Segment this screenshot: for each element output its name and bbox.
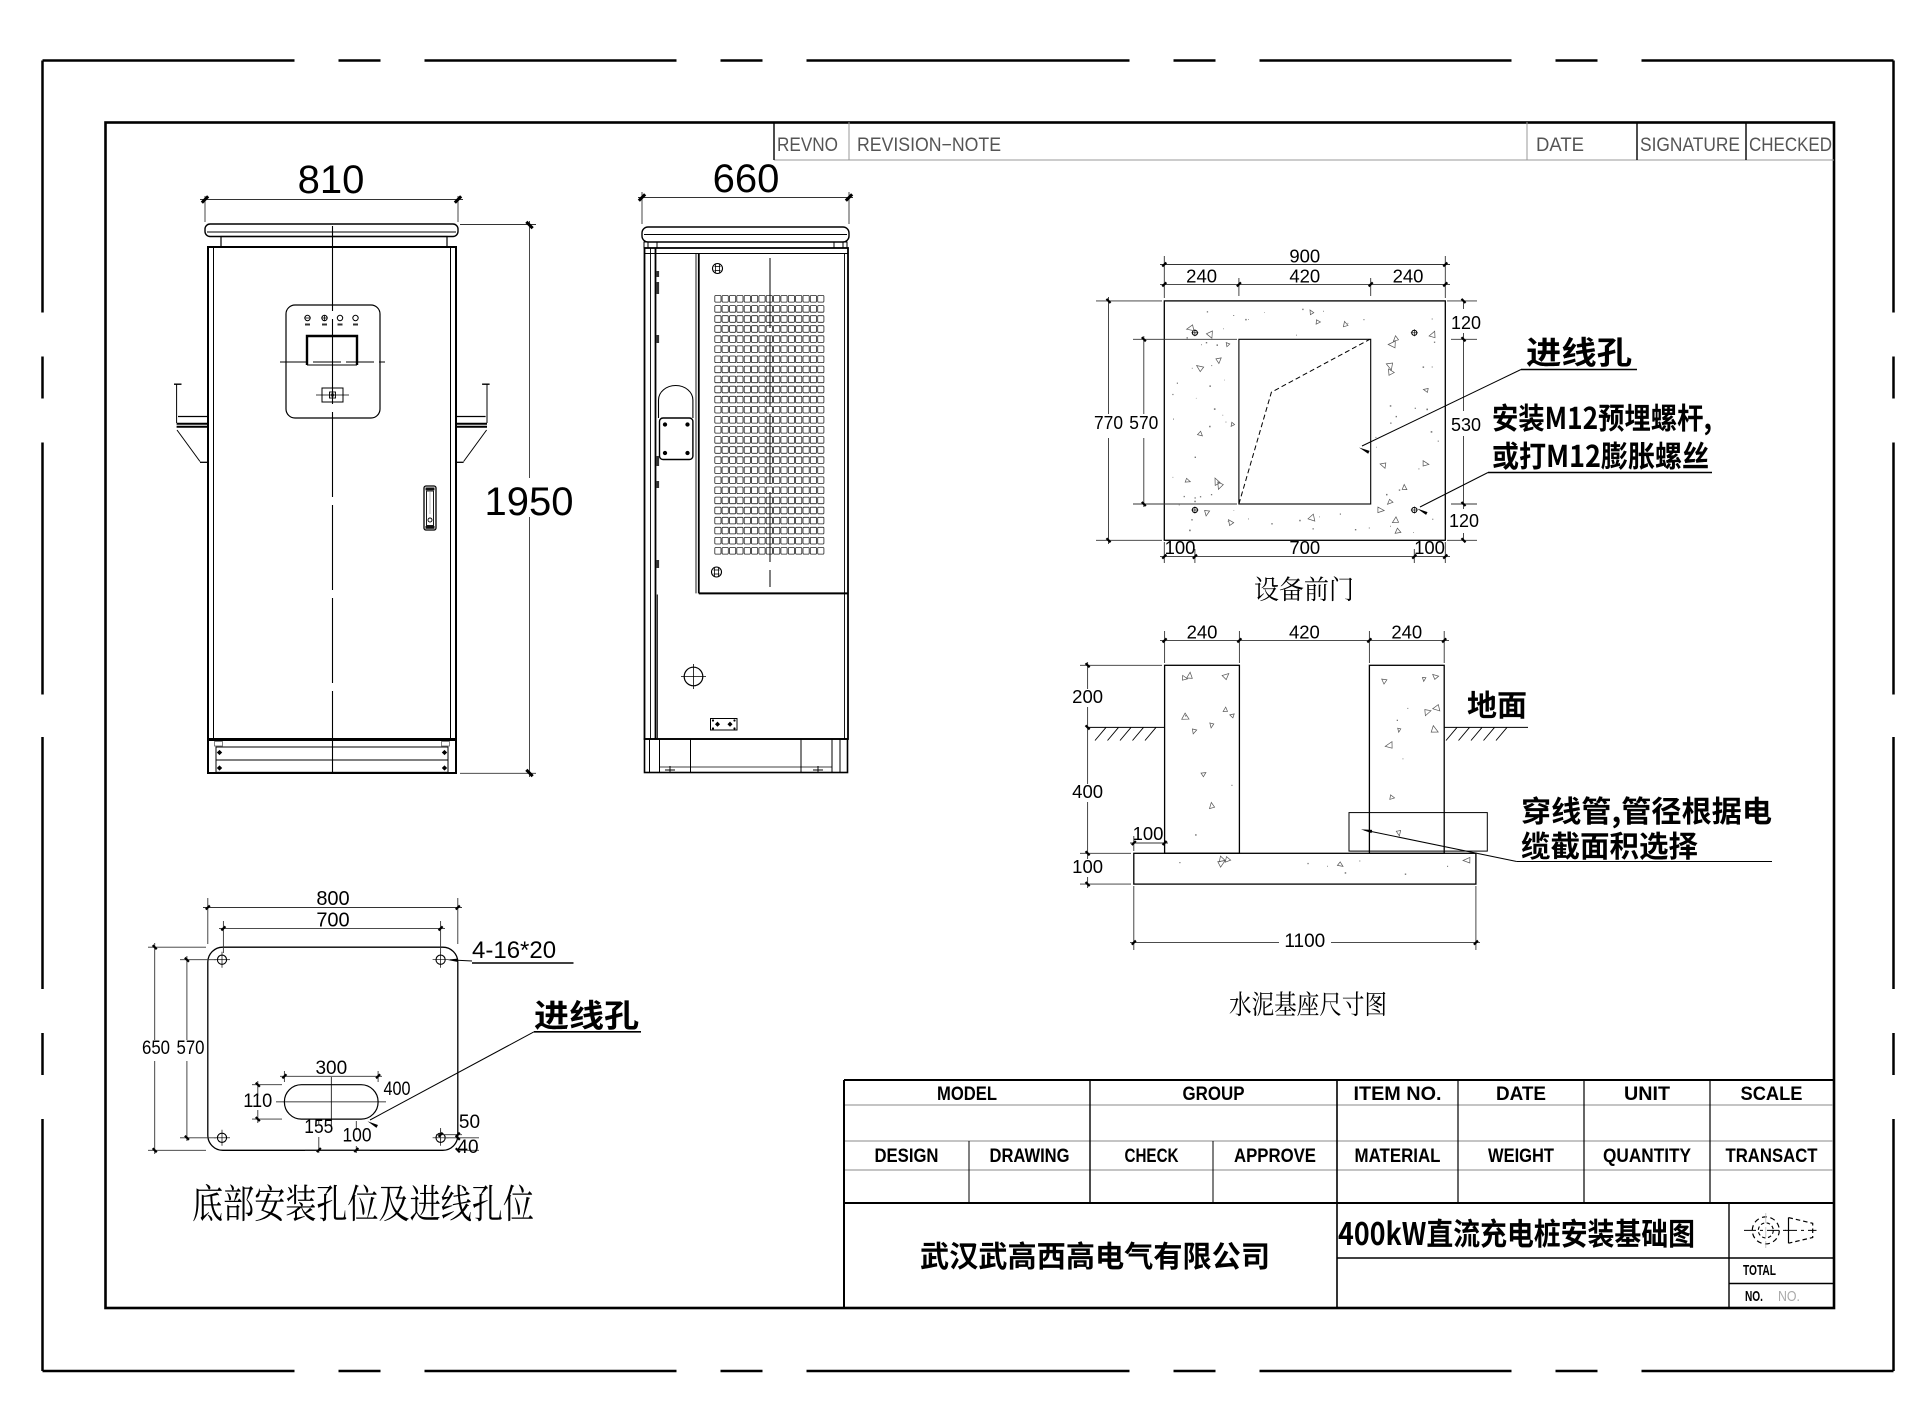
svg-text:770: 770 bbox=[1094, 412, 1123, 433]
svg-text:WEIGHT: WEIGHT bbox=[1488, 1146, 1554, 1167]
svg-text:DRAWING: DRAWING bbox=[990, 1146, 1070, 1167]
svg-text:530: 530 bbox=[1451, 414, 1481, 435]
svg-text:MODEL: MODEL bbox=[937, 1084, 997, 1105]
svg-text:400: 400 bbox=[1072, 781, 1103, 802]
svg-text:700: 700 bbox=[1289, 537, 1320, 558]
svg-text:DESIGN: DESIGN bbox=[875, 1146, 939, 1167]
svg-text:100: 100 bbox=[1414, 537, 1445, 558]
svg-text:240: 240 bbox=[1186, 266, 1217, 287]
svg-text:1100: 1100 bbox=[1284, 931, 1325, 952]
svg-text:400: 400 bbox=[384, 1079, 411, 1100]
svg-text:CHECKED: CHECKED bbox=[1749, 135, 1832, 156]
svg-text:SIGNATURE: SIGNATURE bbox=[1640, 135, 1740, 156]
svg-text:GROUP: GROUP bbox=[1183, 1084, 1245, 1105]
svg-text:650: 650 bbox=[142, 1038, 170, 1059]
svg-text:REVISION−NOTE: REVISION−NOTE bbox=[857, 135, 1001, 156]
svg-text:240: 240 bbox=[1187, 622, 1218, 643]
svg-text:110: 110 bbox=[243, 1091, 272, 1112]
svg-text:DATE: DATE bbox=[1496, 1084, 1546, 1105]
svg-text:300: 300 bbox=[315, 1058, 347, 1079]
svg-text:700: 700 bbox=[316, 910, 349, 932]
svg-text:CHECK: CHECK bbox=[1125, 1146, 1179, 1167]
svg-text:NO.: NO. bbox=[1778, 1288, 1800, 1305]
svg-text:MATERIAL: MATERIAL bbox=[1355, 1146, 1441, 1167]
svg-text:240: 240 bbox=[1391, 622, 1422, 643]
svg-text:4-16*20: 4-16*20 bbox=[472, 937, 556, 964]
svg-text:800: 800 bbox=[316, 888, 349, 910]
svg-text:420: 420 bbox=[1289, 266, 1320, 287]
svg-text:100: 100 bbox=[1165, 537, 1196, 558]
svg-text:155: 155 bbox=[304, 1117, 333, 1138]
svg-text:120: 120 bbox=[1451, 312, 1481, 333]
svg-text:660: 660 bbox=[713, 157, 780, 201]
svg-text:900: 900 bbox=[1289, 246, 1320, 267]
svg-text:SCALE: SCALE bbox=[1741, 1084, 1803, 1105]
svg-text:REVNO: REVNO bbox=[777, 135, 838, 156]
svg-text:810: 810 bbox=[298, 158, 365, 202]
svg-text:570: 570 bbox=[177, 1038, 205, 1059]
svg-text:100: 100 bbox=[1133, 823, 1164, 844]
svg-text:ITEM NO.: ITEM NO. bbox=[1354, 1084, 1442, 1105]
svg-text:40: 40 bbox=[457, 1137, 478, 1158]
svg-text:APPROVE: APPROVE bbox=[1234, 1146, 1316, 1167]
svg-text:QUANTITY: QUANTITY bbox=[1603, 1146, 1691, 1167]
svg-text:570: 570 bbox=[1129, 412, 1158, 433]
svg-text:120: 120 bbox=[1449, 510, 1479, 531]
svg-text:TOTAL: TOTAL bbox=[1743, 1262, 1776, 1279]
svg-text:200: 200 bbox=[1072, 686, 1103, 707]
svg-text:100: 100 bbox=[1072, 856, 1103, 877]
svg-text:50: 50 bbox=[459, 1112, 480, 1133]
svg-text:420: 420 bbox=[1289, 622, 1320, 643]
svg-text:UNIT: UNIT bbox=[1624, 1084, 1670, 1105]
svg-text:240: 240 bbox=[1393, 266, 1424, 287]
svg-text:1950: 1950 bbox=[485, 480, 574, 524]
svg-text:NO.: NO. bbox=[1745, 1288, 1763, 1305]
svg-text:DATE: DATE bbox=[1536, 135, 1584, 156]
svg-text:100: 100 bbox=[343, 1126, 372, 1147]
svg-text:TRANSACT: TRANSACT bbox=[1726, 1146, 1818, 1167]
